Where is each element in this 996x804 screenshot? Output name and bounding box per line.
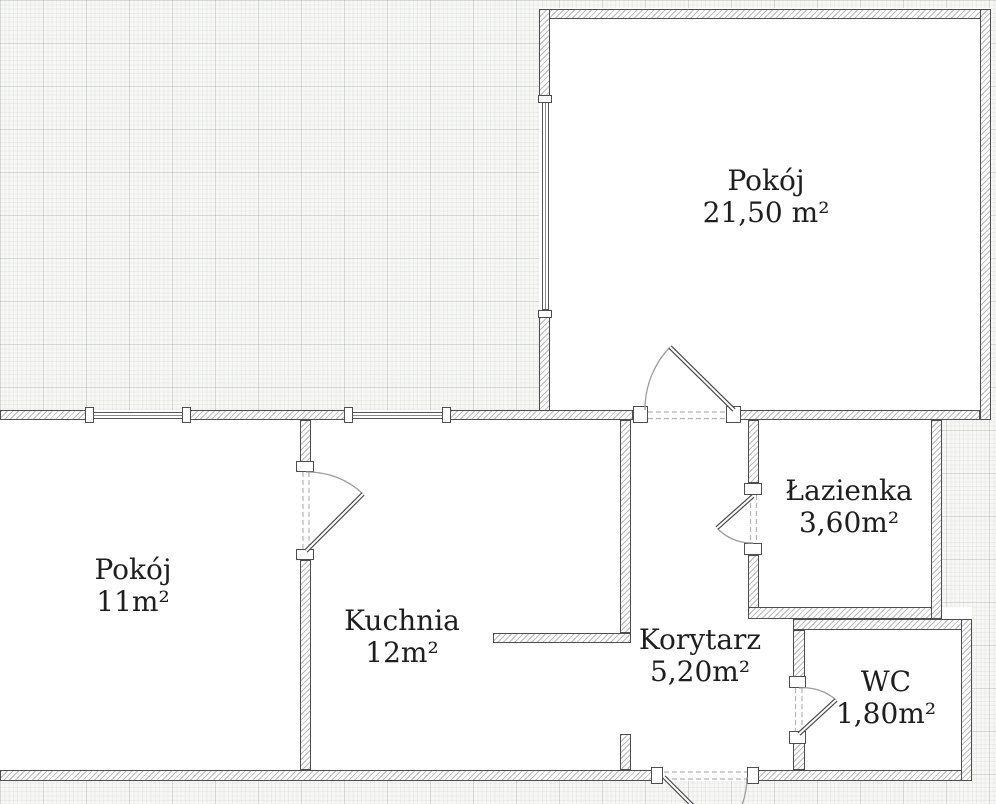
threshold-dashes: [303, 412, 802, 779]
room-name: Pokój: [703, 165, 830, 197]
door-entrance: [664, 777, 747, 804]
room-name: WC: [836, 666, 936, 698]
door-pokoj-small: [306, 472, 363, 551]
room-area: 21,50 m²: [703, 197, 830, 229]
room-name: Pokój: [94, 554, 171, 586]
room-label-lazienka: Łazienka 3,60m²: [785, 475, 912, 539]
room-label-kuchnia: Kuchnia 12m²: [344, 605, 460, 669]
room-label-pokoj-small: Pokój 11m²: [94, 554, 171, 618]
room-name: Kuchnia: [344, 605, 460, 637]
door-pokoj-large: [645, 347, 734, 410]
room-area: 5,20m²: [639, 656, 761, 688]
room-label-korytarz: Korytarz 5,20m²: [639, 624, 761, 688]
room-label-wc: WC 1,80m²: [836, 666, 936, 730]
door-lazienka: [717, 496, 753, 543]
room-area: 1,80m²: [836, 698, 936, 730]
room-name: Korytarz: [639, 624, 761, 656]
door-wc: [799, 688, 836, 734]
floor-plan: Pokój 21,50 m² Pokój 11m² Kuchnia 12m² K…: [0, 0, 996, 804]
room-area: 11m²: [94, 586, 171, 618]
room-name: Łazienka: [785, 475, 912, 507]
room-label-pokoj-large: Pokój 21,50 m²: [703, 165, 830, 229]
room-area: 12m²: [344, 637, 460, 669]
room-area: 3,60m²: [785, 507, 912, 539]
